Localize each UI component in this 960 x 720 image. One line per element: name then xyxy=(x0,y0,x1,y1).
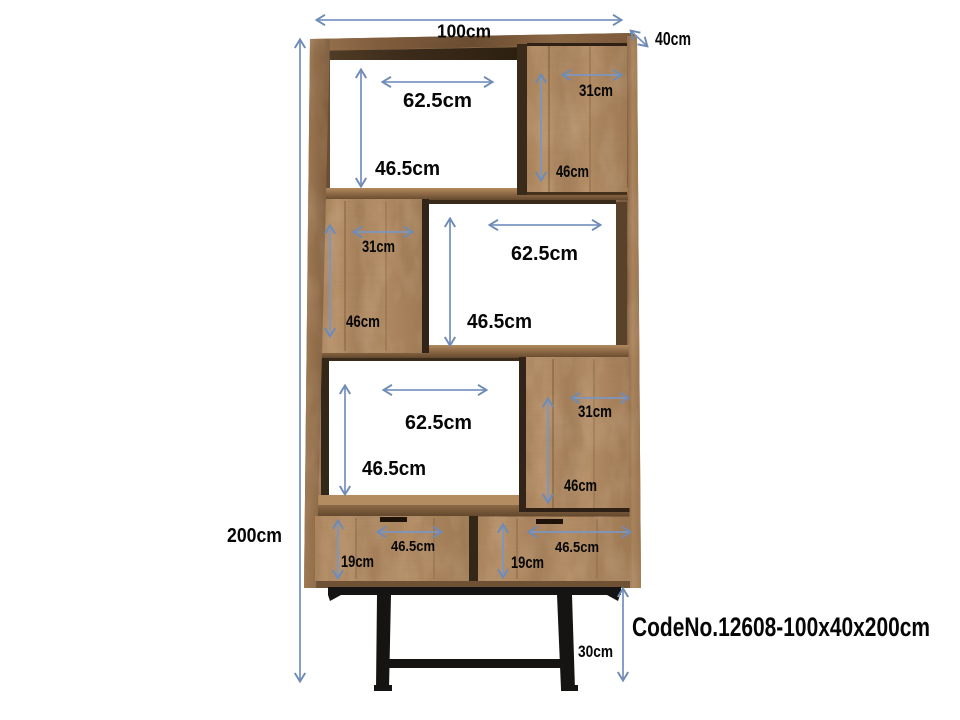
svg-text:19cm: 19cm xyxy=(341,552,374,571)
svg-text:31cm: 31cm xyxy=(578,402,612,421)
svg-text:19cm: 19cm xyxy=(511,553,544,572)
svg-text:46.5cm: 46.5cm xyxy=(391,538,435,555)
svg-text:40cm: 40cm xyxy=(655,29,691,49)
svg-text:100cm: 100cm xyxy=(437,22,491,42)
svg-text:30cm: 30cm xyxy=(578,642,613,661)
svg-text:46.5cm: 46.5cm xyxy=(555,539,599,556)
svg-text:200cm: 200cm xyxy=(227,525,282,547)
svg-text:31cm: 31cm xyxy=(362,237,395,256)
svg-text:62.5cm: 62.5cm xyxy=(511,243,578,265)
svg-text:46.5cm: 46.5cm xyxy=(467,311,532,333)
svg-text:46cm: 46cm xyxy=(564,476,597,495)
svg-text:62.5cm: 62.5cm xyxy=(403,90,472,112)
svg-text:46.5cm: 46.5cm xyxy=(375,158,440,180)
svg-text:46.5cm: 46.5cm xyxy=(362,458,426,480)
svg-text:31cm: 31cm xyxy=(579,81,613,100)
svg-text:46cm: 46cm xyxy=(346,312,380,331)
svg-text:62.5cm: 62.5cm xyxy=(405,412,472,434)
svg-text:CodeNo.12608-100x40x200cm: CodeNo.12608-100x40x200cm xyxy=(632,612,930,642)
svg-text:46cm: 46cm xyxy=(556,162,589,181)
